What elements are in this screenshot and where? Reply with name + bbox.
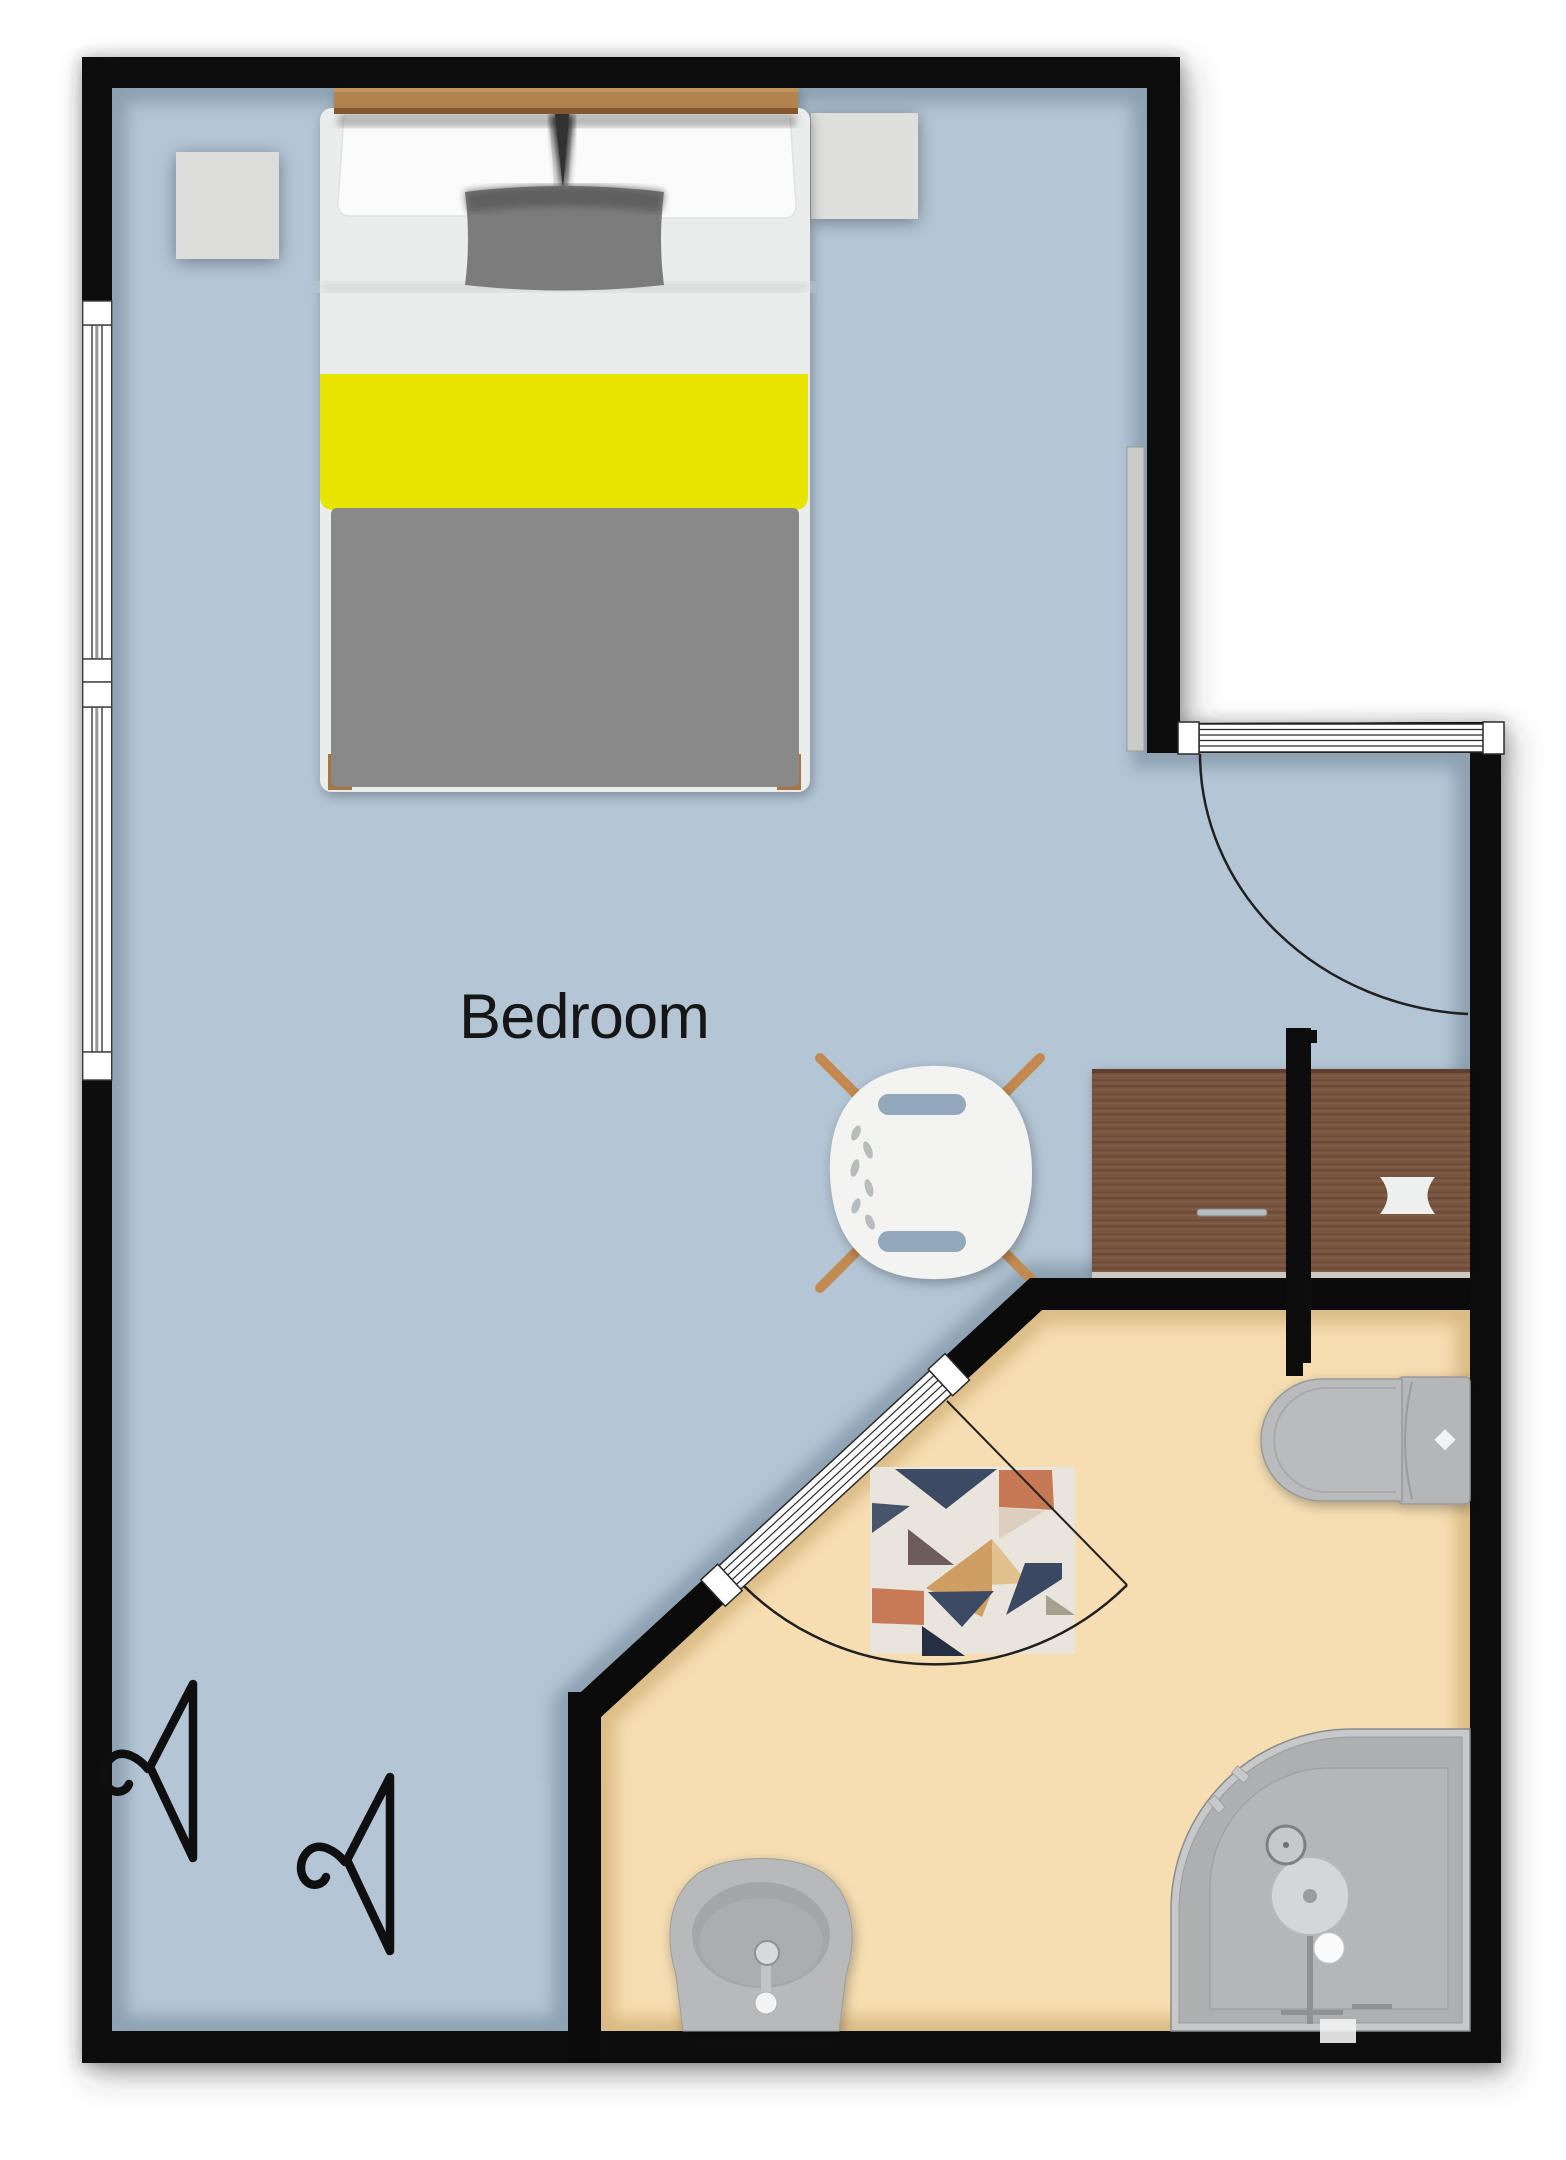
- svg-text:Bedroom: Bedroom: [459, 982, 709, 1052]
